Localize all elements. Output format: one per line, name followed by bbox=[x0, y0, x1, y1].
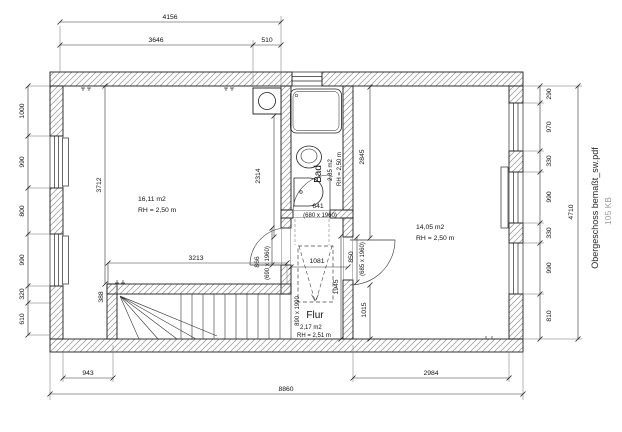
dim-left-6: 610 bbox=[19, 313, 26, 325]
file-name-label: Obergeschoss bemaßt_sw.pdf bbox=[590, 147, 600, 269]
dim-top-chimney: 510 bbox=[261, 37, 273, 44]
right-window-3 bbox=[509, 243, 523, 294]
file-size-label: 105 KB bbox=[603, 197, 613, 225]
wall-bad-south-left bbox=[281, 210, 293, 218]
dim-stair-offset: 388 bbox=[98, 291, 105, 303]
left-window-1 bbox=[50, 136, 69, 188]
dim-left-4: 990 bbox=[19, 254, 26, 266]
door-bad bbox=[293, 175, 330, 218]
dim-flur-width: 1081 bbox=[309, 258, 324, 265]
staircase bbox=[120, 294, 291, 339]
dim-left-5: 320 bbox=[19, 288, 26, 300]
dim-room-left-inner: 2314 bbox=[255, 168, 262, 183]
room-right-area-label: 14,05 m2 bbox=[416, 224, 445, 231]
dim-left-3: 800 bbox=[19, 205, 26, 217]
chimney-body bbox=[253, 88, 281, 114]
dim-stair-opening: 890 x 1990 bbox=[295, 295, 301, 325]
dim-wall-segment: 1015 bbox=[361, 302, 368, 317]
right-window-2 bbox=[501, 167, 523, 228]
dim-stair-length: 3213 bbox=[188, 255, 203, 262]
window-sill bbox=[63, 138, 69, 186]
stair-treads bbox=[181, 294, 291, 339]
wall-left-2 bbox=[50, 188, 63, 234]
dim-bottom-left: 943 bbox=[82, 370, 94, 377]
left-window-2 bbox=[50, 234, 69, 286]
floor-plan-drawing: 4156 3646 510 1000 990 800 990 320 610 2… bbox=[0, 0, 622, 432]
marker-top-left bbox=[81, 88, 91, 91]
dim-right-3: 330 bbox=[546, 155, 553, 167]
stair-winders bbox=[120, 296, 217, 339]
dim-door-right-size: (685 x 1960) bbox=[360, 242, 366, 276]
room-bad-area-label: 2,85 m2 bbox=[328, 159, 334, 181]
room-bad-name-label: Bad bbox=[313, 165, 324, 183]
room-flur-name-label: Flur bbox=[306, 310, 324, 321]
dim-flur-depth: 1945 bbox=[333, 279, 340, 294]
room-left-height-label: RH = 2,50 m bbox=[138, 207, 177, 214]
dim-door-bad-size: (680 x 1960) bbox=[303, 213, 337, 219]
dim-door-right: 850 bbox=[348, 251, 355, 263]
dim-door-left-size: (690 x 1960) bbox=[265, 246, 271, 280]
dim-door-left: 866 bbox=[254, 256, 261, 268]
dim-right-1: 290 bbox=[546, 88, 553, 100]
wall-flur-east bbox=[343, 280, 353, 339]
dim-room-right-depth: 2845 bbox=[359, 149, 366, 164]
toilet bbox=[297, 146, 322, 168]
wall-bottom bbox=[50, 339, 523, 352]
wall-top-right bbox=[322, 72, 523, 86]
dim-bottom-right: 2984 bbox=[423, 370, 438, 377]
wall-right-3 bbox=[509, 223, 523, 243]
wall-bad-east bbox=[343, 86, 353, 210]
chimney bbox=[253, 88, 281, 114]
dim-right-6: 990 bbox=[546, 262, 553, 274]
wall-right-1 bbox=[509, 86, 523, 103]
wall-stair-north bbox=[107, 284, 291, 294]
window-sill bbox=[501, 167, 508, 228]
dim-door-bad: 641 bbox=[312, 203, 324, 210]
window-sill bbox=[63, 236, 69, 284]
wall-bad-west-stub bbox=[281, 218, 291, 228]
room-bad-height-label: RH = 2,50 m bbox=[337, 152, 343, 186]
wall-top-left bbox=[50, 72, 292, 86]
dim-right-7: 810 bbox=[546, 310, 553, 322]
dim-top-left: 3646 bbox=[148, 37, 163, 44]
dim-bottom-total: 8860 bbox=[278, 386, 293, 393]
dim-right-4: 990 bbox=[546, 191, 553, 203]
shower-tray bbox=[291, 89, 342, 133]
dim-top-total: 4156 bbox=[162, 14, 177, 21]
wall-left-1 bbox=[50, 86, 63, 136]
dim-right-2: 970 bbox=[546, 121, 553, 133]
wall-bad-east-stub bbox=[343, 218, 353, 237]
room-flur-area-label: 2,17 m2 bbox=[300, 325, 322, 331]
wall-right-4 bbox=[509, 294, 523, 339]
wall-left-3 bbox=[50, 286, 63, 339]
top-window bbox=[292, 72, 322, 86]
dim-left-2: 990 bbox=[19, 156, 26, 168]
dim-room-left-depth: 3712 bbox=[96, 177, 103, 192]
marker-stair-wall bbox=[115, 280, 125, 283]
file-caption: Obergeschoss bemaßt_sw.pdf 105 KB bbox=[590, 147, 613, 269]
bath-fixtures bbox=[291, 89, 342, 206]
marker-top-right bbox=[224, 88, 234, 91]
room-left-area-label: 16,11 m2 bbox=[138, 196, 166, 203]
right-window-1 bbox=[509, 103, 523, 151]
marker-bottom-right bbox=[484, 336, 494, 339]
dim-right-total: 4710 bbox=[568, 204, 575, 219]
dim-right-5: 330 bbox=[546, 227, 553, 239]
room-flur-height-label: RH = 2,51 m bbox=[297, 333, 331, 339]
floor-plan-preview[interactable]: 4156 3646 510 1000 990 800 990 320 610 2… bbox=[0, 0, 622, 432]
room-right-height-label: RH = 2,50 m bbox=[416, 235, 455, 242]
dim-left-1: 1000 bbox=[19, 103, 26, 118]
wall-bad-west bbox=[281, 86, 291, 210]
wall-right-2 bbox=[509, 151, 523, 172]
